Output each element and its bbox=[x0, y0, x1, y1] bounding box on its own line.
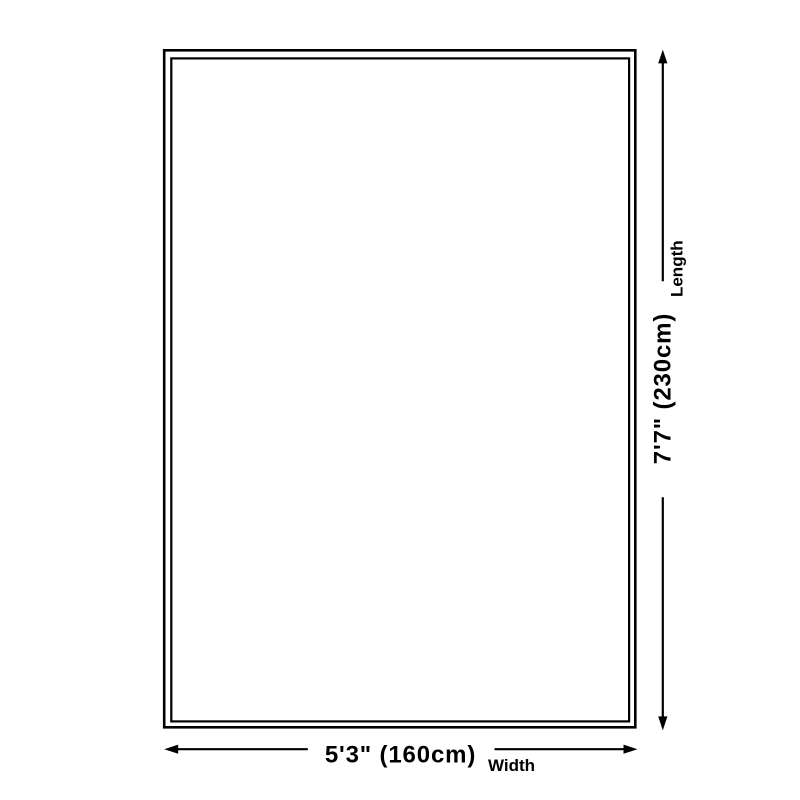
svg-text:Length: Length bbox=[668, 240, 687, 297]
svg-text:5'3" (160cm): 5'3" (160cm) bbox=[325, 742, 476, 769]
svg-text:7'7" (230cm): 7'7" (230cm) bbox=[649, 313, 676, 464]
svg-text:Width: Width bbox=[488, 756, 535, 775]
